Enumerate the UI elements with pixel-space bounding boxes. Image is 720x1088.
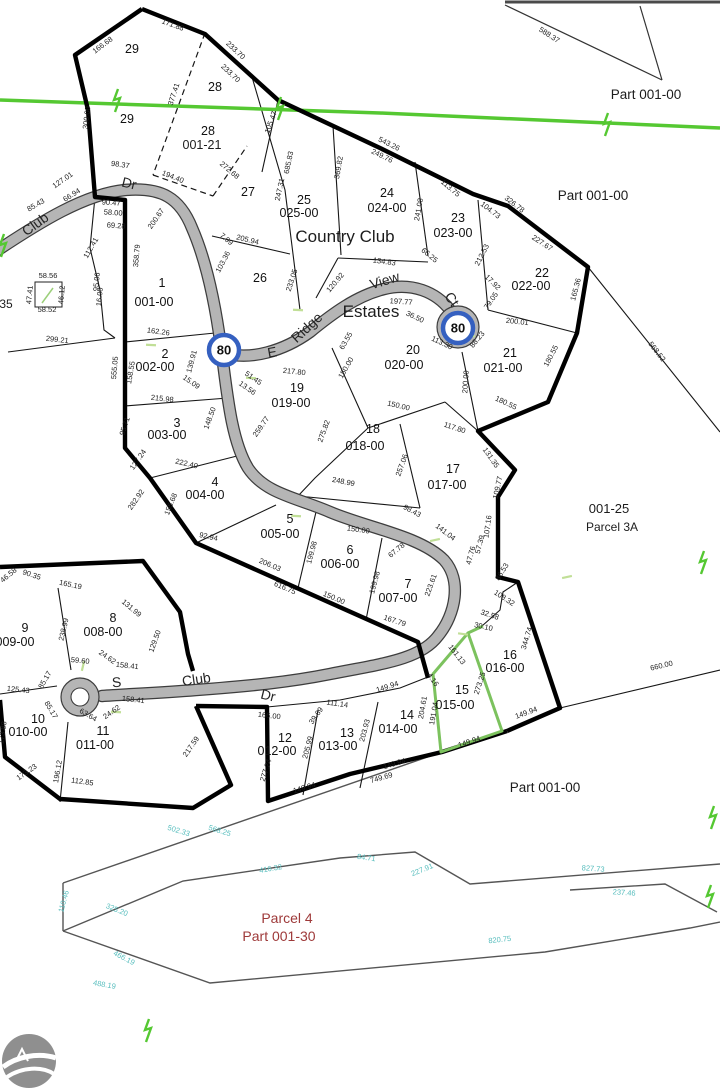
dimension-label: 16.00 — [94, 287, 105, 306]
lot-id: 021-00 — [484, 361, 523, 375]
dimension-label: 90.47 — [101, 197, 120, 207]
dimension-label: 47.41 — [24, 285, 35, 304]
annotation-label: Part 001-00 — [611, 87, 682, 102]
annotation-label: Part 001-00 — [558, 188, 629, 203]
lot-id: 018-00 — [346, 439, 385, 453]
map-viewport[interactable]: 166.68171.88233.70233.70377.41300.00105.… — [0, 0, 720, 1088]
annotation-label: 001-25 — [589, 501, 629, 516]
lot-number: 6 — [347, 543, 354, 557]
lot-number: 25 — [297, 193, 311, 207]
lot-number: 15 — [455, 683, 469, 697]
dimension-label: 58.00 — [103, 207, 122, 217]
lot-id: 008-00 — [84, 625, 123, 639]
dimension-label: 69.28 — [106, 220, 125, 230]
lot-id: 007-00 — [379, 591, 418, 605]
lot-id: 025-00 — [280, 206, 319, 220]
lot-id: 011-00 — [76, 738, 114, 752]
lot-number: 29 — [125, 42, 139, 56]
lot-number: 4 — [212, 475, 219, 489]
lot-number: 1 — [159, 276, 166, 290]
annotation-label: 001-21 — [183, 138, 222, 152]
lot-number: 2 — [162, 347, 169, 361]
annotation-label: Parcel 3A — [586, 520, 638, 534]
lot-number: 14 — [400, 708, 414, 722]
lot-id: 009-00 — [0, 635, 35, 649]
cul-de-sac-west-island — [71, 688, 89, 706]
lot-number: 7 — [405, 577, 412, 591]
lot-id: 023-00 — [434, 226, 473, 240]
road-name-label: S — [111, 674, 122, 691]
annotation-label: 35 — [0, 297, 13, 311]
annotation-label: Part 001-00 — [510, 780, 581, 795]
lot-number: 12 — [278, 731, 292, 745]
lot-number: 23 — [451, 211, 465, 225]
lot-number: 29 — [120, 112, 134, 126]
lot-number: 19 — [290, 381, 304, 395]
lot-id: 006-00 — [321, 557, 360, 571]
lot-id: 012-00 — [258, 744, 297, 758]
lot-number: 11 — [97, 724, 110, 738]
lot-id: 013-00 — [319, 739, 358, 753]
lot-id: 003-00 — [148, 428, 187, 442]
lot-id: 014-00 — [379, 722, 418, 736]
annotation-label: Country Club — [295, 227, 394, 246]
dimension-label: 58.52 — [38, 305, 57, 314]
lot-number: 5 — [287, 512, 294, 526]
dimension-label: 200.00 — [460, 370, 471, 394]
dimension-label: 46.12 — [56, 285, 67, 304]
annotation-label: Estates — [343, 302, 400, 321]
dimension-label: 237.46 — [612, 887, 636, 898]
lot-id: 024-00 — [368, 201, 407, 215]
lot-id: 002-00 — [136, 360, 175, 374]
lot-id: 022-00 — [512, 279, 551, 293]
lot-id: 019-00 — [272, 396, 311, 410]
speed-marker-label: 80 — [451, 321, 465, 336]
annotation-label: Parcel 4 — [261, 910, 313, 926]
lot-id: 016-00 — [486, 661, 525, 675]
map-background — [0, 0, 720, 1088]
lot-number: 22 — [535, 266, 549, 280]
lot-number: 28 — [201, 124, 215, 138]
lot-number: 18 — [366, 422, 380, 436]
lot-number: 24 — [380, 186, 394, 200]
lot-number: 9 — [22, 621, 29, 635]
lot-id: 005-00 — [261, 527, 300, 541]
plat-map-canvas[interactable]: 166.68171.88233.70233.70377.41300.00105.… — [0, 0, 720, 1088]
lot-id: 010-00 — [9, 725, 48, 739]
lot-number: 27 — [241, 185, 255, 199]
dimension-label: 827.73 — [581, 863, 605, 874]
lot-number: 13 — [340, 726, 354, 740]
lot-number: 28 — [208, 80, 222, 94]
lot-number: 8 — [110, 611, 117, 625]
lot-number: 26 — [253, 271, 267, 285]
lot-id: 015-00 — [436, 698, 475, 712]
lot-number: 17 — [446, 462, 460, 476]
dimension-label: 58.56 — [39, 271, 58, 280]
lot-id: 001-00 — [135, 295, 174, 309]
speed-marker-label: 80 — [217, 343, 231, 358]
lot-number: 10 — [31, 712, 45, 726]
annotation-label: Part 001-30 — [242, 928, 315, 944]
lot-id: 004-00 — [186, 488, 225, 502]
lot-id: 020-00 — [385, 358, 424, 372]
lot-id: 017-00 — [428, 478, 467, 492]
lot-number: 20 — [406, 343, 420, 357]
lot-number: 21 — [503, 346, 517, 360]
lot-number: 16 — [503, 648, 517, 662]
